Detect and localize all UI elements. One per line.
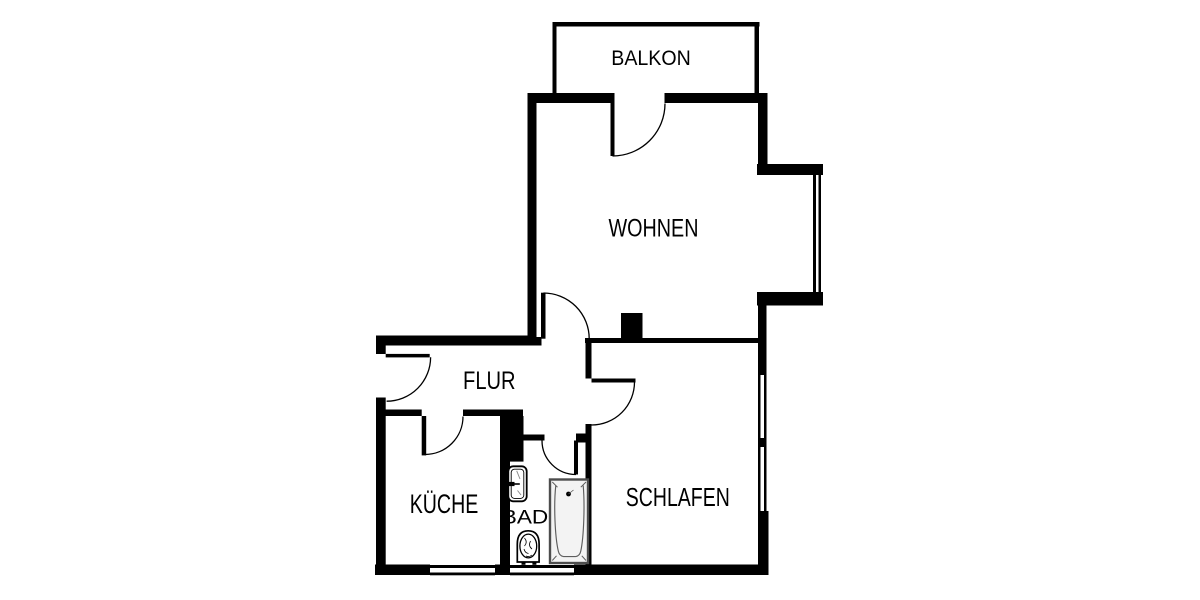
svg-text:KÜCHE: KÜCHE <box>410 488 479 519</box>
svg-text:FLUR: FLUR <box>463 367 516 395</box>
svg-text:BAD: BAD <box>502 508 549 529</box>
svg-text:SCHLAFEN: SCHLAFEN <box>626 482 730 512</box>
svg-text:BALKON: BALKON <box>611 47 691 70</box>
svg-text:WOHNEN: WOHNEN <box>609 214 699 242</box>
